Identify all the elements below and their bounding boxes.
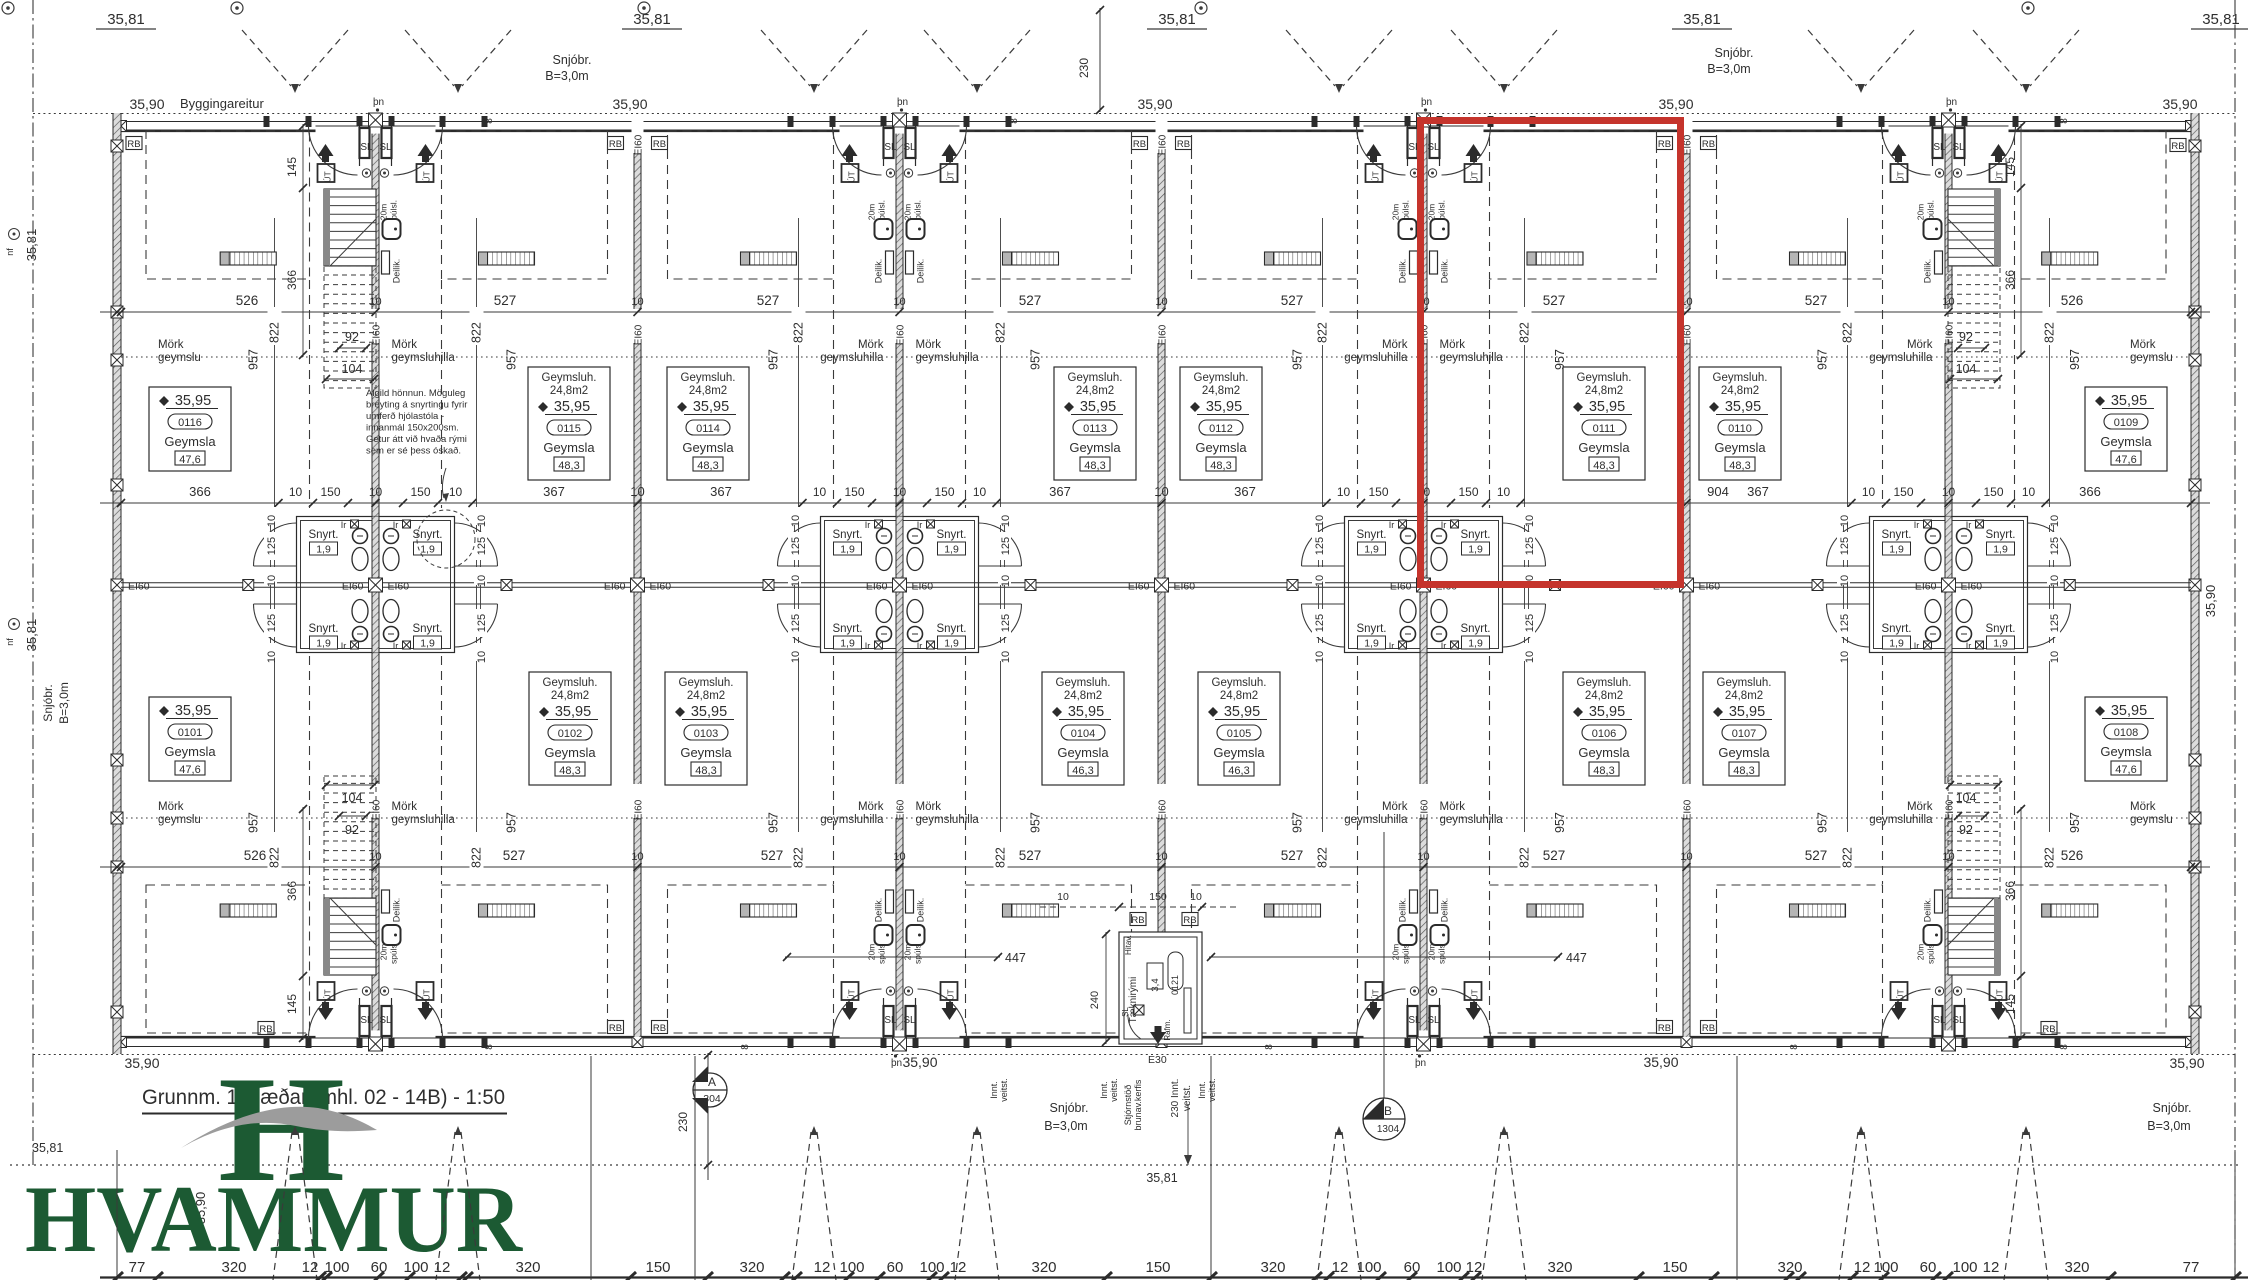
svg-text:Ir: Ir [1389, 520, 1395, 530]
svg-text:0115: 0115 [557, 423, 581, 435]
svg-text:ÚT: ÚT [1896, 171, 1906, 182]
svg-text:Geymsla: Geymsla [164, 434, 216, 449]
svg-text:1,9: 1,9 [1364, 544, 1379, 556]
svg-text:104: 104 [342, 791, 363, 805]
svg-text:10: 10 [630, 484, 644, 499]
svg-text:SL: SL [379, 1015, 392, 1026]
svg-text:10: 10 [1000, 515, 1012, 527]
svg-text:10: 10 [1154, 484, 1168, 499]
svg-text:Geymsla: Geymsla [543, 440, 595, 455]
svg-text:nf: nf [5, 248, 15, 256]
svg-text:Snyrt.: Snyrt. [1881, 529, 1911, 541]
svg-text:125: 125 [1839, 537, 1851, 555]
svg-text:1,9: 1,9 [316, 544, 331, 556]
svg-text:150: 150 [844, 485, 864, 499]
svg-text:Hitav.: Hitav. [1124, 935, 1133, 955]
svg-text:RB: RB [1702, 139, 1715, 150]
svg-text:Snjóbr.: Snjóbr. [1050, 1101, 1089, 1115]
svg-text:125: 125 [790, 614, 802, 632]
svg-text:10: 10 [2049, 575, 2061, 587]
svg-text:Geymsla: Geymsla [1714, 440, 1766, 455]
svg-text:B=3,0m: B=3,0m [2147, 1119, 2190, 1133]
svg-text:125: 125 [1524, 614, 1536, 632]
svg-text:0109: 0109 [2114, 417, 2138, 429]
svg-text:46,3: 46,3 [1072, 765, 1093, 777]
svg-text:Snyrt.: Snyrt. [1356, 529, 1386, 541]
svg-text:0104: 0104 [1071, 728, 1095, 740]
svg-text:822: 822 [1316, 322, 1330, 343]
svg-text:geymsluhilla: geymsluhilla [1869, 814, 1933, 826]
svg-text:10: 10 [369, 485, 383, 499]
svg-text:92: 92 [1959, 330, 1973, 344]
svg-text:822: 822 [792, 847, 806, 868]
svg-text:35,95: 35,95 [1589, 399, 1625, 415]
svg-text:822: 822 [268, 847, 282, 868]
svg-text:Snyrt.: Snyrt. [1881, 623, 1911, 635]
svg-text:RB: RB [1177, 139, 1190, 150]
svg-text:10: 10 [266, 515, 278, 527]
svg-text:Snyrt.: Snyrt. [936, 623, 966, 635]
svg-text:Geymsla: Geymsla [544, 745, 596, 760]
svg-text:20m: 20m [1391, 944, 1401, 961]
svg-text:92: 92 [345, 330, 359, 344]
svg-text:Deilik.: Deilik. [1440, 898, 1450, 923]
svg-text:1304: 1304 [1377, 1124, 1400, 1135]
svg-text:957: 957 [505, 812, 519, 833]
svg-text:125: 125 [476, 537, 488, 555]
svg-text:35,95: 35,95 [175, 703, 211, 719]
svg-text:20m: 20m [379, 944, 389, 961]
svg-text:48,3: 48,3 [1729, 460, 1750, 472]
svg-text:Snyrt.: Snyrt. [1356, 623, 1386, 635]
svg-text:Geymsluh.: Geymsluh. [1577, 372, 1632, 384]
svg-text:1,9: 1,9 [316, 638, 331, 650]
svg-text:Mörk: Mörk [916, 339, 942, 351]
svg-text:35,90: 35,90 [2203, 585, 2218, 618]
svg-text:RB: RB [1702, 1023, 1715, 1034]
svg-text:8: 8 [2059, 1044, 2070, 1050]
svg-text:Innt.: Innt. [1197, 1081, 1207, 1099]
svg-text:24,8m2: 24,8m2 [1220, 690, 1258, 702]
svg-text:Ir: Ir [393, 641, 399, 651]
svg-text:Geymsla: Geymsla [1578, 745, 1630, 760]
svg-text:0112: 0112 [1209, 423, 1233, 435]
svg-text:Mörk: Mörk [916, 801, 942, 813]
svg-text:527: 527 [1805, 848, 1828, 863]
svg-text:35,95: 35,95 [1725, 399, 1761, 415]
svg-text:48,3: 48,3 [559, 765, 580, 777]
svg-text:125: 125 [1839, 614, 1851, 632]
svg-text:35,81: 35,81 [2202, 11, 2240, 28]
svg-text:366: 366 [2079, 484, 2101, 499]
svg-text:527: 527 [1805, 293, 1828, 308]
svg-text:447: 447 [1566, 951, 1587, 965]
svg-text:ÚT: ÚT [323, 171, 333, 182]
svg-text:1,9: 1,9 [420, 544, 435, 556]
svg-text:Deilik.: Deilik. [1923, 898, 1933, 923]
svg-text:Deilik.: Deilik. [1398, 259, 1408, 284]
svg-text:8: 8 [1789, 1044, 1800, 1050]
svg-text:EI60: EI60 [1158, 134, 1169, 155]
svg-text:ÚT: ÚT [847, 171, 857, 182]
svg-text:10: 10 [631, 851, 643, 863]
svg-text:20m: 20m [867, 944, 877, 961]
svg-text:320: 320 [1777, 1259, 1802, 1276]
svg-text:48,3: 48,3 [1733, 765, 1754, 777]
svg-text:527: 527 [761, 848, 784, 863]
svg-text:957: 957 [1816, 812, 1830, 833]
svg-text:Rafm.: Rafm. [1163, 1019, 1172, 1040]
svg-text:geymsluhilla: geymsluhilla [916, 814, 980, 826]
svg-text:geymsluhilla: geymsluhilla [820, 814, 884, 826]
svg-text:Ir: Ir [341, 520, 347, 530]
svg-text:527: 527 [503, 848, 526, 863]
svg-text:Mörk: Mörk [2130, 801, 2156, 813]
svg-text:0103: 0103 [694, 728, 718, 740]
svg-text:1,9: 1,9 [944, 638, 959, 650]
svg-text:1,9: 1,9 [1468, 544, 1483, 556]
svg-text:B=3,0m: B=3,0m [1044, 1119, 1087, 1133]
svg-text:A: A [708, 1075, 716, 1089]
svg-text:Ir: Ir [341, 641, 347, 651]
svg-text:526: 526 [2061, 848, 2084, 863]
svg-text:0108: 0108 [2114, 727, 2138, 739]
svg-text:geymsluhilla: geymsluhilla [1440, 352, 1504, 364]
svg-text:EI60: EI60 [896, 799, 907, 820]
svg-text:366: 366 [2003, 881, 2017, 901]
svg-text:Snyrt.: Snyrt. [832, 529, 862, 541]
svg-text:320: 320 [739, 1259, 764, 1276]
svg-text:RB: RB [127, 139, 140, 150]
svg-text:RB: RB [1658, 1023, 1671, 1034]
svg-text:150: 150 [1368, 485, 1388, 499]
svg-text:Geymsluh.: Geymsluh. [543, 677, 598, 689]
svg-text:Geymsla: Geymsla [2100, 744, 2152, 759]
svg-text:RB: RB [653, 1023, 666, 1034]
svg-text:Ir: Ir [1914, 520, 1920, 530]
svg-text:Mörk: Mörk [1440, 801, 1466, 813]
svg-text:Deilik.: Deilik. [874, 898, 884, 923]
svg-text:Snyrt.: Snyrt. [308, 529, 338, 541]
svg-text:822: 822 [470, 847, 484, 868]
svg-text:EI60: EI60 [1683, 134, 1694, 155]
svg-text:Ir: Ir [917, 641, 923, 651]
svg-text:EI60: EI60 [128, 581, 150, 593]
svg-text:Deilik.: Deilik. [392, 259, 402, 284]
svg-text:Ir: Ir [393, 520, 399, 530]
svg-text:geymsluhilla: geymsluhilla [392, 814, 456, 826]
svg-text:Ir: Ir [917, 520, 923, 530]
svg-text:320: 320 [1031, 1259, 1056, 1276]
svg-text:EI60: EI60 [634, 324, 645, 345]
svg-text:Snyrt.: Snyrt. [1985, 623, 2015, 635]
svg-text:20m: 20m [903, 204, 913, 221]
svg-text:þn: þn [1946, 97, 1957, 108]
svg-text:EI60: EI60 [1961, 581, 1983, 593]
svg-text:Geymsla: Geymsla [1195, 440, 1247, 455]
svg-text:10: 10 [1000, 651, 1012, 663]
svg-text:Deilik.: Deilik. [1398, 898, 1408, 923]
svg-text:24,8m2: 24,8m2 [1076, 385, 1114, 397]
svg-text:Ir: Ir [1914, 641, 1920, 651]
svg-text:0106: 0106 [1592, 728, 1616, 740]
svg-text:125: 125 [266, 537, 278, 555]
svg-text:EI60: EI60 [1390, 581, 1412, 593]
svg-text:RB: RB [1658, 139, 1671, 150]
svg-text:367: 367 [543, 484, 565, 499]
svg-text:Ir: Ir [1389, 641, 1395, 651]
svg-text:E30: E30 [1148, 1054, 1167, 1066]
svg-text:957: 957 [505, 349, 519, 370]
svg-text:Deilik.: Deilik. [874, 259, 884, 284]
svg-text:Ir: Ir [1441, 520, 1447, 530]
svg-text:35,95: 35,95 [2111, 703, 2147, 719]
svg-text:veitst.: veitst. [999, 1078, 1009, 1102]
svg-text:35,90: 35,90 [2162, 96, 2197, 112]
svg-text:957: 957 [1816, 349, 1830, 370]
svg-text:35,95: 35,95 [693, 399, 729, 415]
svg-text:SL: SL [1952, 1015, 1965, 1026]
svg-text:geymsluhilla: geymsluhilla [1344, 814, 1408, 826]
svg-text:10: 10 [1000, 575, 1012, 587]
svg-text:104: 104 [342, 362, 363, 376]
svg-text:veitst.: veitst. [1207, 1078, 1217, 1102]
svg-text:35,95: 35,95 [175, 393, 211, 409]
svg-text:125: 125 [790, 537, 802, 555]
svg-text:10: 10 [790, 575, 802, 587]
svg-text:150: 150 [645, 1259, 670, 1276]
svg-text:Mörk: Mörk [1382, 339, 1408, 351]
svg-text:EI60: EI60 [650, 581, 672, 593]
svg-text:526: 526 [244, 848, 267, 863]
svg-text:10: 10 [1862, 485, 1876, 499]
svg-text:geymslu: geymslu [2130, 352, 2173, 364]
svg-text:0121: 0121 [1170, 975, 1180, 995]
svg-text:47,6: 47,6 [179, 454, 200, 466]
svg-text:EI60: EI60 [896, 324, 907, 345]
svg-text:RB: RB [1183, 915, 1196, 926]
svg-text:527: 527 [1543, 293, 1566, 308]
svg-text:Deilik.: Deilik. [1440, 259, 1450, 284]
svg-text:24,8m2: 24,8m2 [1064, 690, 1102, 702]
svg-text:SL: SL [884, 142, 897, 153]
svg-text:10: 10 [266, 575, 278, 587]
svg-text:822: 822 [1518, 847, 1532, 868]
svg-text:35,90: 35,90 [1658, 96, 1693, 112]
svg-text:100: 100 [919, 1259, 944, 1276]
svg-text:10: 10 [1497, 485, 1511, 499]
svg-text:EI60: EI60 [866, 581, 888, 593]
svg-text:20m: 20m [1916, 944, 1926, 961]
svg-text:0110: 0110 [1728, 423, 1752, 435]
svg-text:EI60: EI60 [1683, 324, 1694, 345]
svg-text:Ir: Ir [865, 520, 871, 530]
svg-text:12: 12 [302, 1259, 319, 1276]
svg-text:Snyrt.: Snyrt. [936, 529, 966, 541]
svg-text:527: 527 [757, 293, 780, 308]
svg-text:Snjóbr.: Snjóbr. [41, 684, 55, 721]
svg-text:SL: SL [1427, 1015, 1440, 1026]
svg-text:822: 822 [2043, 322, 2057, 343]
svg-text:100: 100 [1436, 1259, 1461, 1276]
svg-text:1,9: 1,9 [840, 638, 855, 650]
svg-text:24,8m2: 24,8m2 [1202, 385, 1240, 397]
svg-text:24,8m2: 24,8m2 [689, 385, 727, 397]
svg-text:35,81: 35,81 [633, 11, 671, 28]
svg-text:10: 10 [289, 485, 303, 499]
svg-text:957: 957 [1029, 812, 1043, 833]
svg-text:10: 10 [1314, 575, 1326, 587]
svg-text:Ir: Ir [1441, 641, 1447, 651]
svg-text:geymsluhilla: geymsluhilla [1440, 814, 1504, 826]
svg-text:Innt.: Innt. [1099, 1081, 1109, 1099]
svg-text:SL: SL [884, 1015, 897, 1026]
svg-text:Geymsluh.: Geymsluh. [1717, 677, 1772, 689]
svg-text:12: 12 [1983, 1259, 2000, 1276]
svg-text:ÚT: ÚT [946, 171, 956, 182]
svg-text:SL: SL [360, 142, 373, 153]
svg-text:527: 527 [1019, 848, 1042, 863]
svg-text:35,95: 35,95 [2111, 393, 2147, 409]
svg-text:527: 527 [1019, 293, 1042, 308]
svg-text:10: 10 [790, 515, 802, 527]
svg-text:822: 822 [994, 847, 1008, 868]
svg-text:145: 145 [2003, 157, 2017, 177]
svg-text:48,3: 48,3 [695, 765, 716, 777]
svg-text:B=3,0m: B=3,0m [1707, 62, 1750, 76]
svg-text:10: 10 [2049, 651, 2061, 663]
svg-text:822: 822 [994, 322, 1008, 343]
svg-text:10: 10 [266, 651, 278, 663]
svg-text:sem er sé þess óskað.: sem er sé þess óskað. [366, 446, 461, 457]
svg-text:RB: RB [1131, 915, 1144, 926]
svg-text:EI60: EI60 [1128, 581, 1150, 593]
svg-text:367: 367 [710, 484, 732, 499]
svg-text:umferð hjólastóla -: umferð hjólastóla - [366, 411, 444, 422]
svg-text:35,95: 35,95 [1206, 399, 1242, 415]
svg-text:35,81: 35,81 [107, 11, 145, 28]
svg-text:RB: RB [1133, 139, 1146, 150]
svg-text:1,9: 1,9 [1993, 638, 2008, 650]
svg-text:Geymsla: Geymsla [2100, 434, 2152, 449]
svg-text:47,6: 47,6 [2115, 454, 2136, 466]
svg-text:48,3: 48,3 [1593, 765, 1614, 777]
svg-text:B=3,0m: B=3,0m [545, 69, 588, 83]
svg-text:320: 320 [515, 1259, 540, 1276]
svg-text:35,81: 35,81 [24, 229, 39, 262]
svg-text:35,95: 35,95 [691, 704, 727, 720]
svg-text:822: 822 [2043, 847, 2057, 868]
svg-text:24,8m2: 24,8m2 [687, 690, 725, 702]
svg-text:Geymsla: Geymsla [1213, 745, 1265, 760]
svg-text:geymslu: geymslu [2130, 814, 2173, 826]
svg-text:24,8m2: 24,8m2 [1585, 690, 1623, 702]
svg-text:145: 145 [2003, 994, 2017, 1014]
svg-text:SL: SL [1121, 1007, 1130, 1017]
svg-text:35,81: 35,81 [1158, 11, 1196, 28]
svg-text:230: 230 [676, 1112, 690, 1132]
svg-text:125: 125 [2049, 537, 2061, 555]
svg-text:Deilik.: Deilik. [916, 259, 926, 284]
svg-text:1,9: 1,9 [1364, 638, 1379, 650]
svg-text:12: 12 [434, 1259, 451, 1276]
svg-text:100: 100 [1356, 1259, 1381, 1276]
svg-text:SL: SL [1408, 1015, 1421, 1026]
svg-text:527: 527 [1281, 293, 1304, 308]
svg-text:104: 104 [1956, 362, 1977, 376]
svg-text:Snyrt.: Snyrt. [308, 623, 338, 635]
svg-text:24,8m2: 24,8m2 [551, 690, 589, 702]
svg-text:125: 125 [2049, 614, 2061, 632]
svg-text:ÚT: ÚT [1470, 171, 1480, 182]
svg-text:Mörk: Mörk [158, 801, 184, 813]
svg-text:35,81: 35,81 [1146, 1171, 1177, 1185]
svg-text:10: 10 [476, 651, 488, 663]
svg-text:10: 10 [1839, 575, 1851, 587]
svg-text:ÚT: ÚT [946, 989, 956, 1000]
svg-text:957: 957 [1029, 349, 1043, 370]
svg-text:35,95: 35,95 [1068, 704, 1104, 720]
svg-text:957: 957 [2068, 812, 2082, 833]
svg-text:EI60: EI60 [604, 581, 626, 593]
svg-text:Geymsla: Geymsla [682, 440, 734, 455]
svg-text:150: 150 [1145, 1259, 1170, 1276]
svg-text:Geymsluh.: Geymsluh. [1713, 372, 1768, 384]
svg-text:822: 822 [792, 322, 806, 343]
svg-text:10: 10 [2049, 515, 2061, 527]
svg-text:Snjóbr.: Snjóbr. [2153, 1101, 2192, 1115]
svg-text:10: 10 [1942, 485, 1956, 499]
svg-text:145: 145 [285, 157, 299, 177]
svg-text:Snjóbr.: Snjóbr. [553, 53, 592, 67]
svg-text:1,9: 1,9 [944, 544, 959, 556]
svg-text:35,90: 35,90 [612, 96, 647, 112]
svg-text:Algild hönnun. Möguleg: Algild hönnun. Möguleg [366, 388, 465, 399]
svg-text:Mörk: Mörk [2130, 339, 2156, 351]
svg-text:10: 10 [1524, 651, 1536, 663]
svg-text:60: 60 [1404, 1259, 1421, 1276]
svg-text:1,9: 1,9 [840, 544, 855, 556]
svg-text:Ir: Ir [1966, 641, 1972, 651]
svg-text:125: 125 [1000, 537, 1012, 555]
svg-text:Mörk: Mörk [1382, 801, 1408, 813]
svg-text:320: 320 [2064, 1259, 2089, 1276]
svg-text:Mörk: Mörk [392, 801, 418, 813]
svg-text:20m: 20m [1916, 204, 1926, 221]
svg-text:B=3,0m: B=3,0m [57, 682, 71, 724]
svg-text:320: 320 [1260, 1259, 1285, 1276]
svg-text:367: 367 [1747, 484, 1769, 499]
svg-text:10: 10 [1839, 651, 1851, 663]
svg-text:1,9: 1,9 [1993, 544, 2008, 556]
svg-text:48,3: 48,3 [558, 460, 579, 472]
svg-text:46,3: 46,3 [1228, 765, 1249, 777]
svg-text:geymsluhilla: geymsluhilla [1869, 352, 1933, 364]
svg-text:ÚT: ÚT [847, 989, 857, 1000]
svg-text:35,95: 35,95 [1080, 399, 1116, 415]
svg-text:822: 822 [1316, 847, 1330, 868]
svg-text:geymslu: geymslu [158, 814, 201, 826]
svg-text:Geymsluh.: Geymsluh. [1068, 372, 1123, 384]
svg-text:10: 10 [973, 485, 987, 499]
svg-text:447: 447 [1005, 951, 1026, 965]
svg-text:Geymsla: Geymsla [1578, 440, 1630, 455]
svg-text:breyting á snyrtingu fyrir: breyting á snyrtingu fyrir [366, 400, 467, 411]
svg-text:Geymsluh.: Geymsluh. [1212, 677, 1267, 689]
svg-text:24,8m2: 24,8m2 [1721, 385, 1759, 397]
svg-text:10: 10 [790, 651, 802, 663]
svg-text:10: 10 [1314, 515, 1326, 527]
